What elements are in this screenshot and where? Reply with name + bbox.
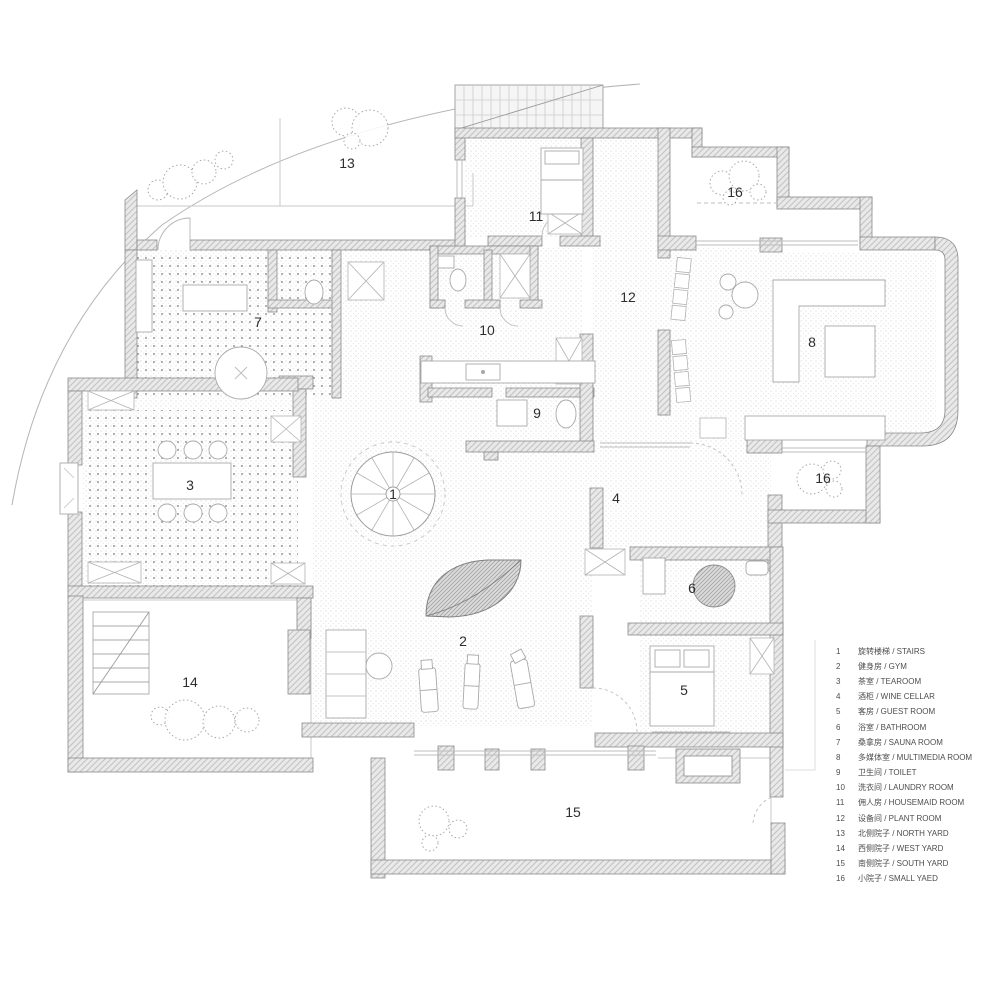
legend-row: 3茶室 / TEAROOM <box>836 674 1000 689</box>
legend-row: 9卫生间 / TOILET <box>836 766 1000 781</box>
floor-plan-page: 13 16 11 12 10 7 8 9 3 1 4 16 6 2 5 14 1… <box>0 0 1000 1000</box>
room-label-4: 4 <box>612 490 620 506</box>
trees-south-yard <box>419 806 467 851</box>
legend-num: 7 <box>836 739 858 747</box>
room-label-15: 15 <box>565 804 581 820</box>
yard-stair-14 <box>93 612 149 694</box>
legend-row: 16小院子 / SMALL YAED <box>836 872 1000 887</box>
bed-11 <box>541 148 583 214</box>
room-label-1: 1 <box>389 486 397 502</box>
legend-row: 6浴室 / BATHROOM <box>836 720 1000 735</box>
legend-label: 客房 / GUEST ROOM <box>858 708 935 716</box>
legend: 1旋转楼梯 / STAIRS 2健身房 / GYM 3茶室 / TEAROOM … <box>836 644 1000 887</box>
bay-window-left <box>60 463 78 514</box>
legend-num: 13 <box>836 830 858 838</box>
legend-row: 14西侧院子 / WEST YARD <box>836 841 1000 856</box>
legend-num: 1 <box>836 648 858 656</box>
legend-num: 8 <box>836 754 858 762</box>
sauna-table <box>183 285 247 311</box>
exterior-stair <box>455 85 603 130</box>
toilet-bathblock <box>450 269 466 291</box>
legend-num: 12 <box>836 815 858 823</box>
sink-bathblock <box>438 256 454 268</box>
bathtub-6 <box>693 565 735 607</box>
legend-label: 西侧院子 / WEST YARD <box>858 845 943 853</box>
legend-row: 15南侧院子 / SOUTH YARD <box>836 857 1000 872</box>
legend-num: 14 <box>836 845 858 853</box>
legend-row: 2健身房 / GYM <box>836 659 1000 674</box>
legend-row: 12设备间 / PLANT ROOM <box>836 811 1000 826</box>
toilet-6 <box>746 561 768 575</box>
legend-label: 旋转楼梯 / STAIRS <box>858 648 925 656</box>
legend-num: 3 <box>836 678 858 686</box>
room-label-12: 12 <box>620 289 636 305</box>
legend-label: 桑拿房 / SAUNA ROOM <box>858 739 943 747</box>
legend-label: 酒柜 / WINE CELLAR <box>858 693 935 701</box>
room-label-5: 5 <box>680 682 688 698</box>
sauna-bench <box>136 260 152 332</box>
legend-num: 6 <box>836 724 858 732</box>
room-label-11: 11 <box>529 208 544 224</box>
legend-label: 洗衣间 / LAUNDRY ROOM <box>858 784 954 792</box>
legend-label: 北侧院子 / NORTH YARD <box>858 830 949 838</box>
legend-row: 7桑拿房 / SAUNA ROOM <box>836 735 1000 750</box>
legend-row: 10洗衣间 / LAUNDRY ROOM <box>836 781 1000 796</box>
vanity-6 <box>643 558 665 594</box>
legend-num: 9 <box>836 769 858 777</box>
legend-label: 健身房 / GYM <box>858 663 907 671</box>
legend-label: 多媒体室 / MULTIMEDIA ROOM <box>858 754 972 762</box>
toilet-7 <box>305 280 323 304</box>
trees-north-yard <box>148 108 388 200</box>
legend-label: 卫生间 / TOILET <box>858 769 917 777</box>
room-label-8: 8 <box>808 334 816 350</box>
legend-num: 16 <box>836 875 858 883</box>
legend-num: 10 <box>836 784 858 792</box>
room-label-13: 13 <box>339 155 355 171</box>
legend-label: 南侧院子 / SOUTH YARD <box>858 860 948 868</box>
kitchen-counter <box>421 361 595 383</box>
room-label-16-mid: 16 <box>815 470 831 486</box>
room-label-3: 3 <box>186 477 194 493</box>
room-label-7: 7 <box>254 314 262 330</box>
legend-label: 佣人房 / HOUSEMAID ROOM <box>858 799 964 807</box>
legend-label: 浴室 / BATHROOM <box>858 724 926 732</box>
room-label-6: 6 <box>688 580 696 596</box>
legend-row: 1旋转楼梯 / STAIRS <box>836 644 1000 659</box>
room-label-16-top: 16 <box>727 184 743 200</box>
legend-num: 2 <box>836 663 858 671</box>
gym-ball <box>366 653 392 679</box>
legend-label: 设备间 / PLANT ROOM <box>858 815 941 823</box>
sink-9 <box>497 400 527 426</box>
legend-num: 5 <box>836 708 858 716</box>
legend-num: 11 <box>836 799 858 807</box>
toilet-9 <box>556 400 576 428</box>
legend-row: 13北侧院子 / NORTH YARD <box>836 826 1000 841</box>
room-label-9: 9 <box>533 405 541 421</box>
legend-label: 茶室 / TEAROOM <box>858 678 921 686</box>
legend-num: 15 <box>836 860 858 868</box>
legend-label: 小院子 / SMALL YAED <box>858 875 938 883</box>
trees-west-yard <box>151 700 259 740</box>
legend-row: 11佣人房 / HOUSEMAID ROOM <box>836 796 1000 811</box>
planter-inner <box>684 756 732 776</box>
legend-num: 4 <box>836 693 858 701</box>
legend-row: 5客房 / GUEST ROOM <box>836 705 1000 720</box>
room-label-2: 2 <box>459 633 467 649</box>
legend-row: 8多媒体室 / MULTIMEDIA ROOM <box>836 750 1000 765</box>
room-label-10: 10 <box>479 322 495 338</box>
legend-row: 4酒柜 / WINE CELLAR <box>836 690 1000 705</box>
room-label-14: 14 <box>182 674 198 690</box>
